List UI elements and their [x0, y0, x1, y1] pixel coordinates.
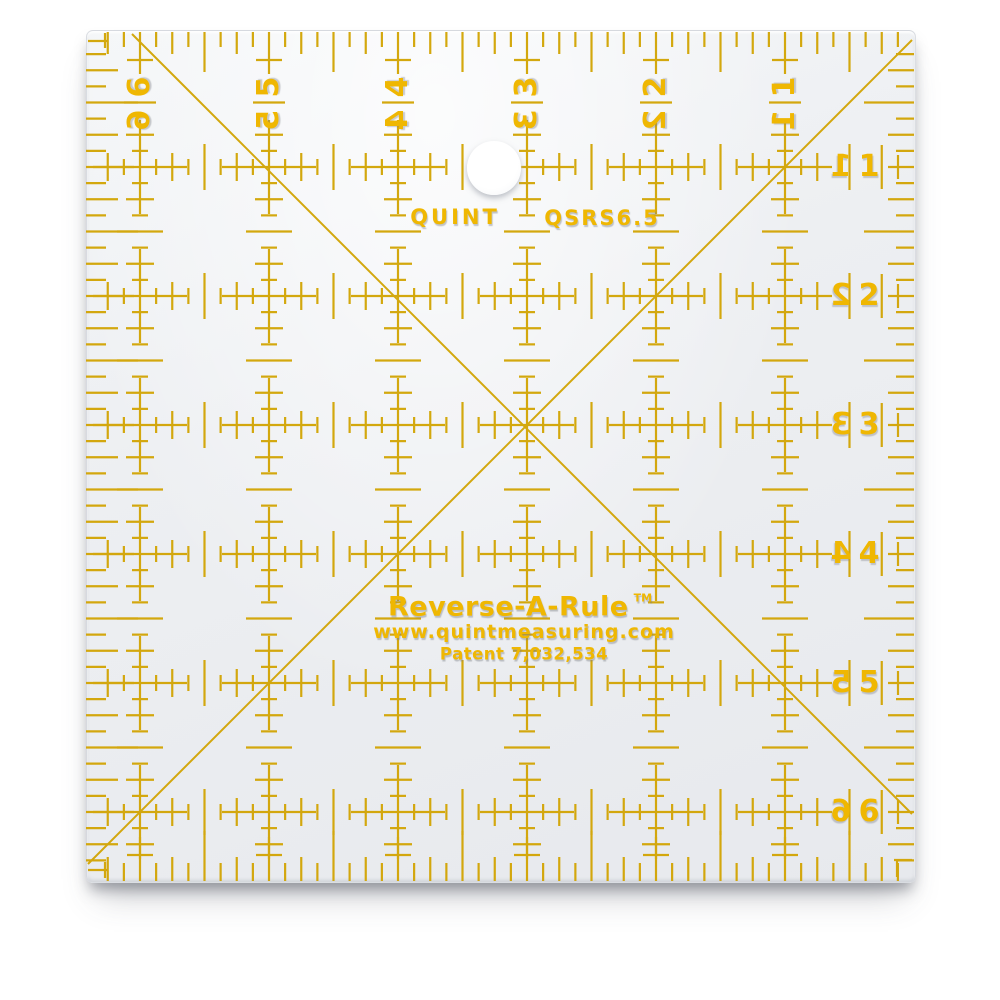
trademark-symbol: TM: [634, 592, 652, 605]
patent-text: Patent 7,032,534: [440, 645, 608, 664]
hanging-hole: [467, 141, 521, 195]
model-number-text: QSRS6.5: [544, 206, 659, 230]
product-name: Reverse-A-Rule: [388, 592, 629, 623]
product-photo-quilting-ruler: 665544332211112233445566 QUINT QSRS6.5 R…: [0, 0, 1000, 1000]
product-name-text: Reverse-A-RuleTM: [388, 592, 652, 623]
brand-text: QUINT: [410, 205, 500, 229]
website-text: www.quintmeasuring.com: [373, 621, 675, 643]
